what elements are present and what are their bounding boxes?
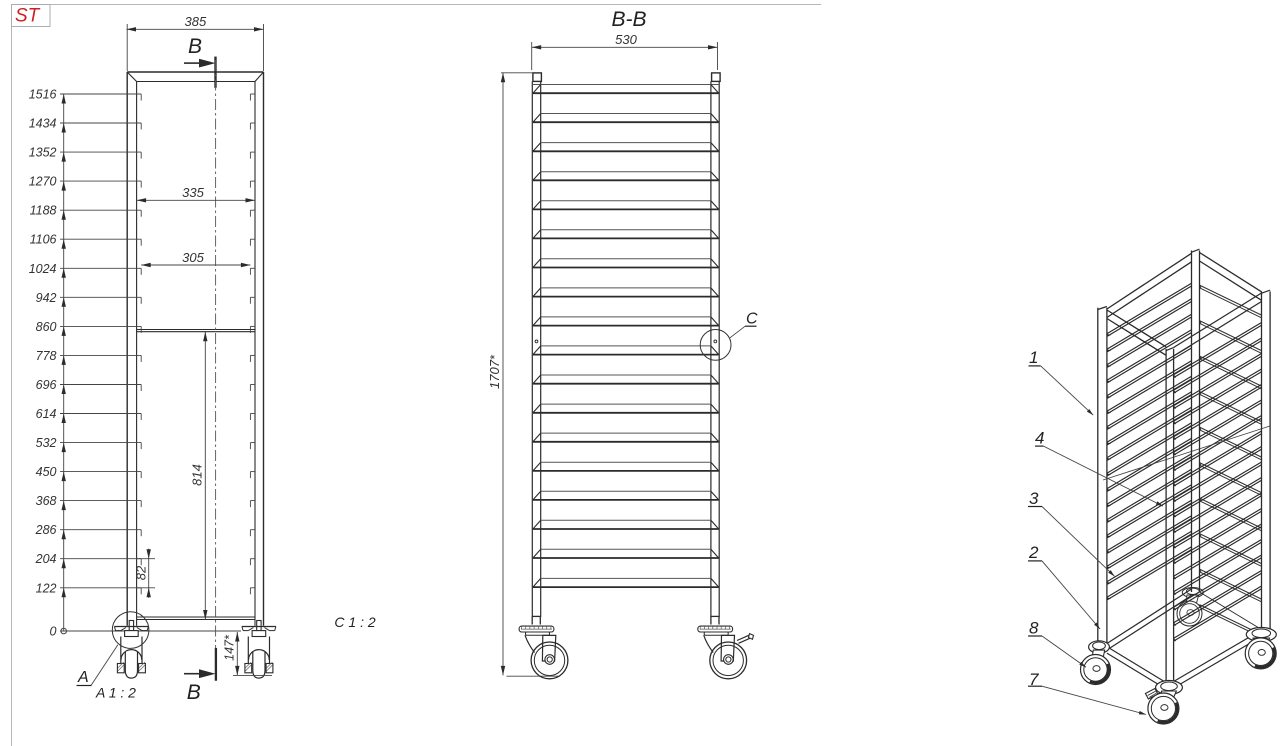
svg-text:8: 8 (1029, 619, 1039, 638)
svg-text:B-B: B-B (611, 8, 646, 31)
svg-text:1352: 1352 (29, 146, 57, 160)
svg-text:305: 305 (182, 250, 204, 265)
svg-text:696: 696 (36, 378, 57, 392)
svg-text:1106: 1106 (30, 233, 57, 247)
svg-text:450: 450 (36, 465, 57, 479)
svg-text:1: 1 (1029, 348, 1038, 367)
svg-text:942: 942 (36, 291, 57, 305)
svg-text:2: 2 (1028, 543, 1039, 562)
svg-text:1270: 1270 (29, 175, 57, 189)
svg-text:1516: 1516 (29, 88, 57, 102)
svg-text:778: 778 (36, 349, 57, 363)
svg-text:147*: 147* (223, 634, 237, 661)
svg-text:82: 82 (134, 565, 149, 580)
svg-text:1188: 1188 (30, 204, 57, 218)
svg-text:4: 4 (1035, 429, 1044, 448)
svg-text:614: 614 (36, 407, 57, 421)
svg-text:122: 122 (36, 581, 57, 595)
svg-text:814: 814 (190, 464, 205, 486)
svg-text:0: 0 (50, 625, 57, 639)
svg-text:368: 368 (36, 494, 57, 508)
svg-text:A: A (77, 669, 89, 686)
svg-text:A 1 : 2: A 1 : 2 (95, 685, 136, 701)
svg-text:1434: 1434 (29, 117, 57, 131)
svg-text:3: 3 (1029, 489, 1039, 508)
svg-text:C: C (746, 311, 758, 328)
svg-text:532: 532 (36, 436, 57, 450)
svg-text:204: 204 (35, 552, 57, 566)
svg-text:C 1 : 2: C 1 : 2 (334, 614, 375, 630)
svg-text:530: 530 (615, 32, 637, 47)
svg-text:385: 385 (185, 14, 207, 29)
svg-text:335: 335 (182, 185, 204, 200)
svg-text:286: 286 (35, 523, 57, 537)
svg-text:1024: 1024 (29, 262, 57, 276)
svg-text:860: 860 (36, 320, 57, 334)
svg-text:1707*: 1707* (487, 354, 502, 389)
svg-text:ST: ST (15, 6, 41, 27)
svg-text:B: B (187, 681, 201, 704)
svg-text:B: B (188, 35, 202, 58)
